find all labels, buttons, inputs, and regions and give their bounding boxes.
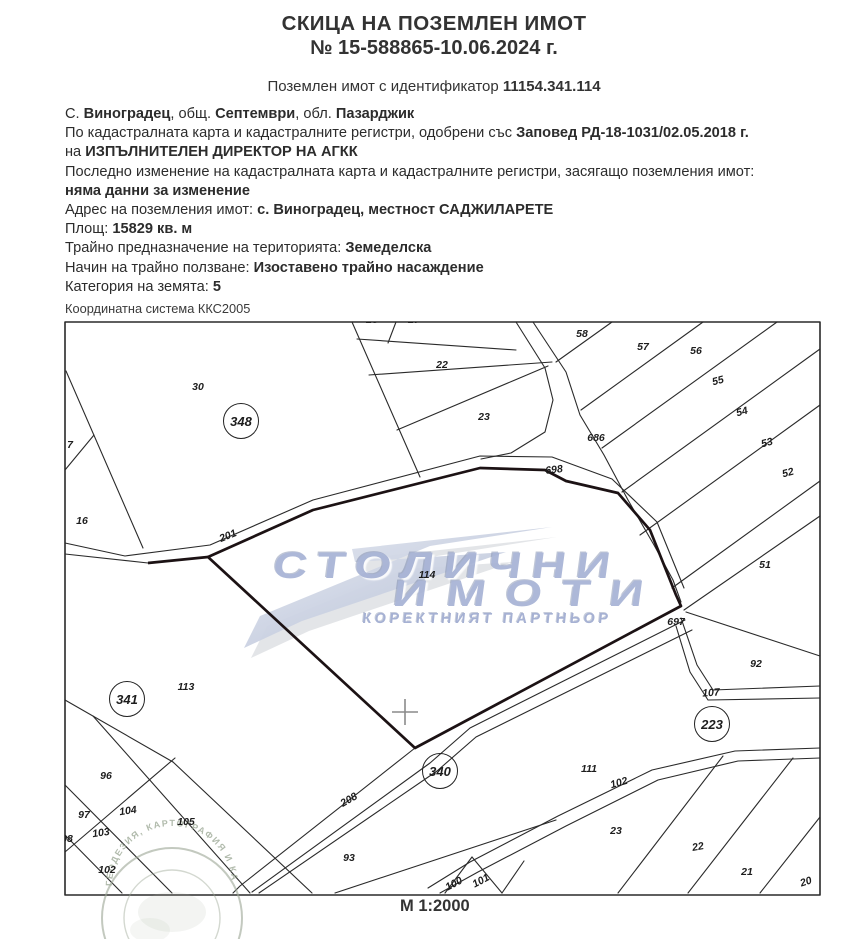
parcel-number-label: 22 — [436, 359, 448, 371]
property-info-line: Последно изменение на кадастралната карт… — [65, 163, 825, 182]
parcel-number-label: 22 — [691, 840, 705, 854]
parcel-number-label: 20 — [799, 874, 814, 889]
parcel-number-label: 104 — [118, 804, 137, 818]
parcel-number-label: 208 — [338, 790, 359, 809]
parcel-number-label: 686 — [587, 432, 605, 444]
parcel-number-label: 57 — [637, 341, 649, 353]
coordinate-system-label: Координатна система ККС2005 — [65, 301, 250, 316]
parcel-number-label: 54 — [735, 405, 749, 420]
parcel-number-label: 100 — [443, 875, 464, 894]
parcel-number-label: 111 — [581, 763, 597, 775]
parcel-number-label: 101 — [470, 872, 491, 891]
parcel-number-label: 56 — [690, 345, 702, 357]
parcel-number-circled: 348 — [223, 403, 259, 439]
document-title: СКИЦА НА ПОЗЕМЛЕН ИМОТ — [0, 12, 868, 36]
parcel-number-label: 113 — [178, 681, 195, 693]
property-info-line: Площ: 15829 кв. м — [65, 220, 825, 239]
property-info-line: С. Виноградец, общ. Септември, обл. Паза… — [65, 105, 825, 124]
property-info-line: Адрес на поземления имот: с. Виноградец,… — [65, 201, 825, 220]
identifier-value: 11154.341.114 — [503, 78, 601, 95]
parcel-number-label: 52 — [781, 466, 795, 481]
parcel-number-label: 105 — [177, 816, 195, 828]
parcel-number-label: 697 — [667, 616, 685, 628]
parcel-number-label: 27 — [408, 322, 420, 326]
property-info-line: По кадастралната карта и кадастралните р… — [65, 124, 825, 143]
parcel-number-label: 26 — [366, 322, 378, 326]
property-info-line: Начин на трайно ползване: Изоставено тра… — [65, 259, 825, 278]
property-info-line: Трайно предназначение на територията: Зе… — [65, 239, 825, 258]
parcel-number-circled: 340 — [422, 753, 458, 789]
parcel-number-label: 93 — [343, 852, 355, 864]
parcel-number-label: 102 — [98, 864, 116, 876]
property-info-line: на ИЗПЪЛНИТЕЛЕН ДИРЕКТОР НА АГКК — [65, 143, 825, 162]
parcel-labels-layer: 3034826272223585756555453525168669871620… — [65, 322, 820, 895]
parcel-number-label: 23 — [478, 411, 490, 423]
map-scale-label: М 1:2000 — [400, 897, 470, 916]
parcel-number-label: 58 — [576, 328, 588, 340]
parcel-number-label: 92 — [750, 658, 762, 670]
parcel-number-label: 114 — [419, 569, 436, 581]
cadastral-sketch-document: СКИЦА НА ПОЗЕМЛЕН ИМОТ № 15-588865-10.06… — [0, 0, 868, 939]
property-identifier-line: Поземлен имот с идентификатор 11154.341.… — [0, 78, 868, 95]
parcel-number-label: 23 — [610, 825, 622, 837]
parcel-number-label: 51 — [759, 559, 771, 571]
parcel-number-label: 107 — [702, 686, 720, 699]
property-info: С. Виноградец, общ. Септември, обл. Паза… — [65, 105, 825, 297]
parcel-number-label: 98 — [65, 833, 73, 845]
property-info-line: няма данни за изменение — [65, 182, 825, 201]
parcel-number-label: 53 — [760, 436, 774, 451]
parcel-number-label: 7 — [67, 439, 73, 451]
parcel-number-circled: 223 — [694, 706, 730, 742]
parcel-number-label: 16 — [76, 515, 88, 527]
parcel-number-label: 96 — [100, 770, 112, 782]
parcel-number-label: 698 — [545, 463, 564, 477]
identifier-prefix: Поземлен имот с идентификатор — [267, 78, 502, 95]
property-info-line: Категория на земята: 5 — [65, 278, 825, 297]
parcel-number-label: 21 — [741, 866, 753, 878]
parcel-number-label: 30 — [192, 381, 204, 393]
parcel-number-label: 97 — [78, 809, 90, 821]
parcel-number-circled: 341 — [109, 681, 145, 717]
parcel-number-label: 102 — [609, 775, 629, 791]
document-number: № 15-588865-10.06.2024 г. — [0, 37, 868, 60]
parcel-number-label: 55 — [711, 374, 725, 389]
parcel-number-label: 201 — [218, 527, 239, 545]
parcel-number-label: 103 — [91, 826, 110, 840]
